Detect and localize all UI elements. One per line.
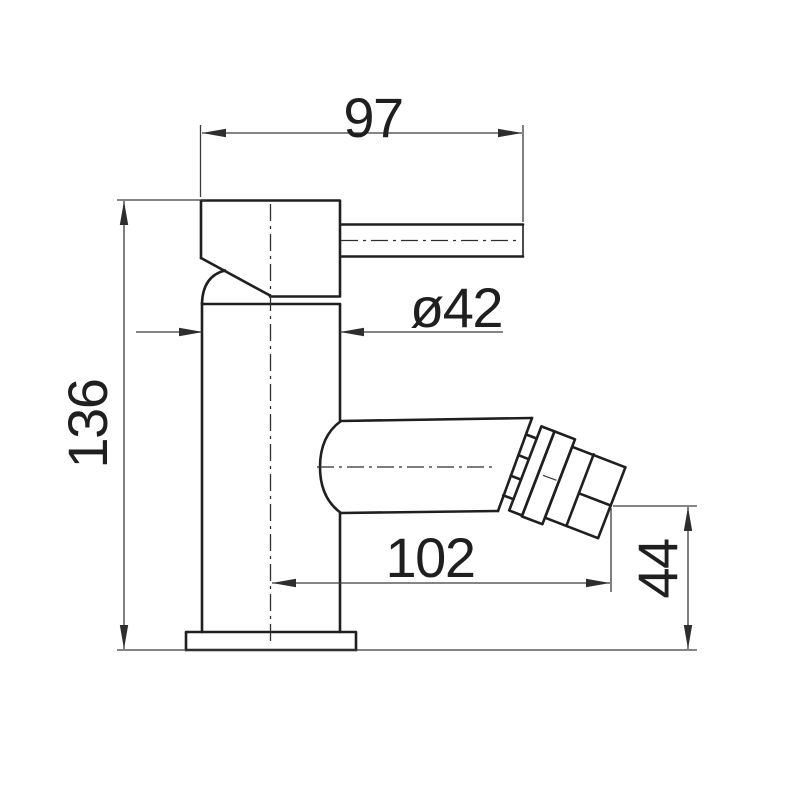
- aerator-outlet-line: [579, 493, 611, 505]
- aerator-nut-face-line: [566, 454, 593, 526]
- head-neck-fillet-arc: [202, 271, 225, 304]
- aerator-neck-step-4: [503, 495, 513, 499]
- aerator-nut: [545, 447, 625, 538]
- arrowhead-right-icon: [179, 328, 203, 336]
- arrowhead-down-icon: [120, 625, 128, 649]
- dim42-label: ø42: [410, 276, 502, 339]
- aerator-neck-step-3: [511, 476, 521, 480]
- arrowhead-right-icon: [586, 579, 610, 587]
- centerline-aerator-dash: [543, 475, 557, 480]
- spout-top-edge: [341, 418, 532, 421]
- arrowhead-left-icon: [340, 328, 364, 336]
- technical-drawing-canvas: 97 ø42 136 102 44: [0, 0, 800, 800]
- arrowhead-down-icon: [684, 625, 692, 649]
- dim97-label: 97: [343, 86, 402, 149]
- faucet-technical-drawing: 97 ø42 136 102 44: [0, 0, 800, 800]
- arrowhead-left-icon: [202, 129, 226, 137]
- aerator-neck-step-2: [519, 455, 529, 459]
- arrowhead-right-icon: [498, 129, 522, 137]
- arrowhead-up-icon: [120, 201, 128, 225]
- arrowhead-up-icon: [684, 507, 692, 531]
- dimension-102: 102: [272, 508, 611, 592]
- dimension-dia42: ø42: [136, 276, 503, 339]
- dim44-label: 44: [626, 539, 689, 599]
- faucet-spout: [320, 418, 532, 513]
- dimension-136: 136: [56, 200, 206, 649]
- arrowhead-left-icon: [272, 579, 296, 587]
- dim102-label: 102: [386, 526, 475, 589]
- aerator-neck-step-1: [527, 435, 537, 439]
- dim136-label: 136: [56, 380, 119, 469]
- aerator-ring-1: [509, 426, 554, 515]
- spout-bottom-edge: [341, 511, 498, 513]
